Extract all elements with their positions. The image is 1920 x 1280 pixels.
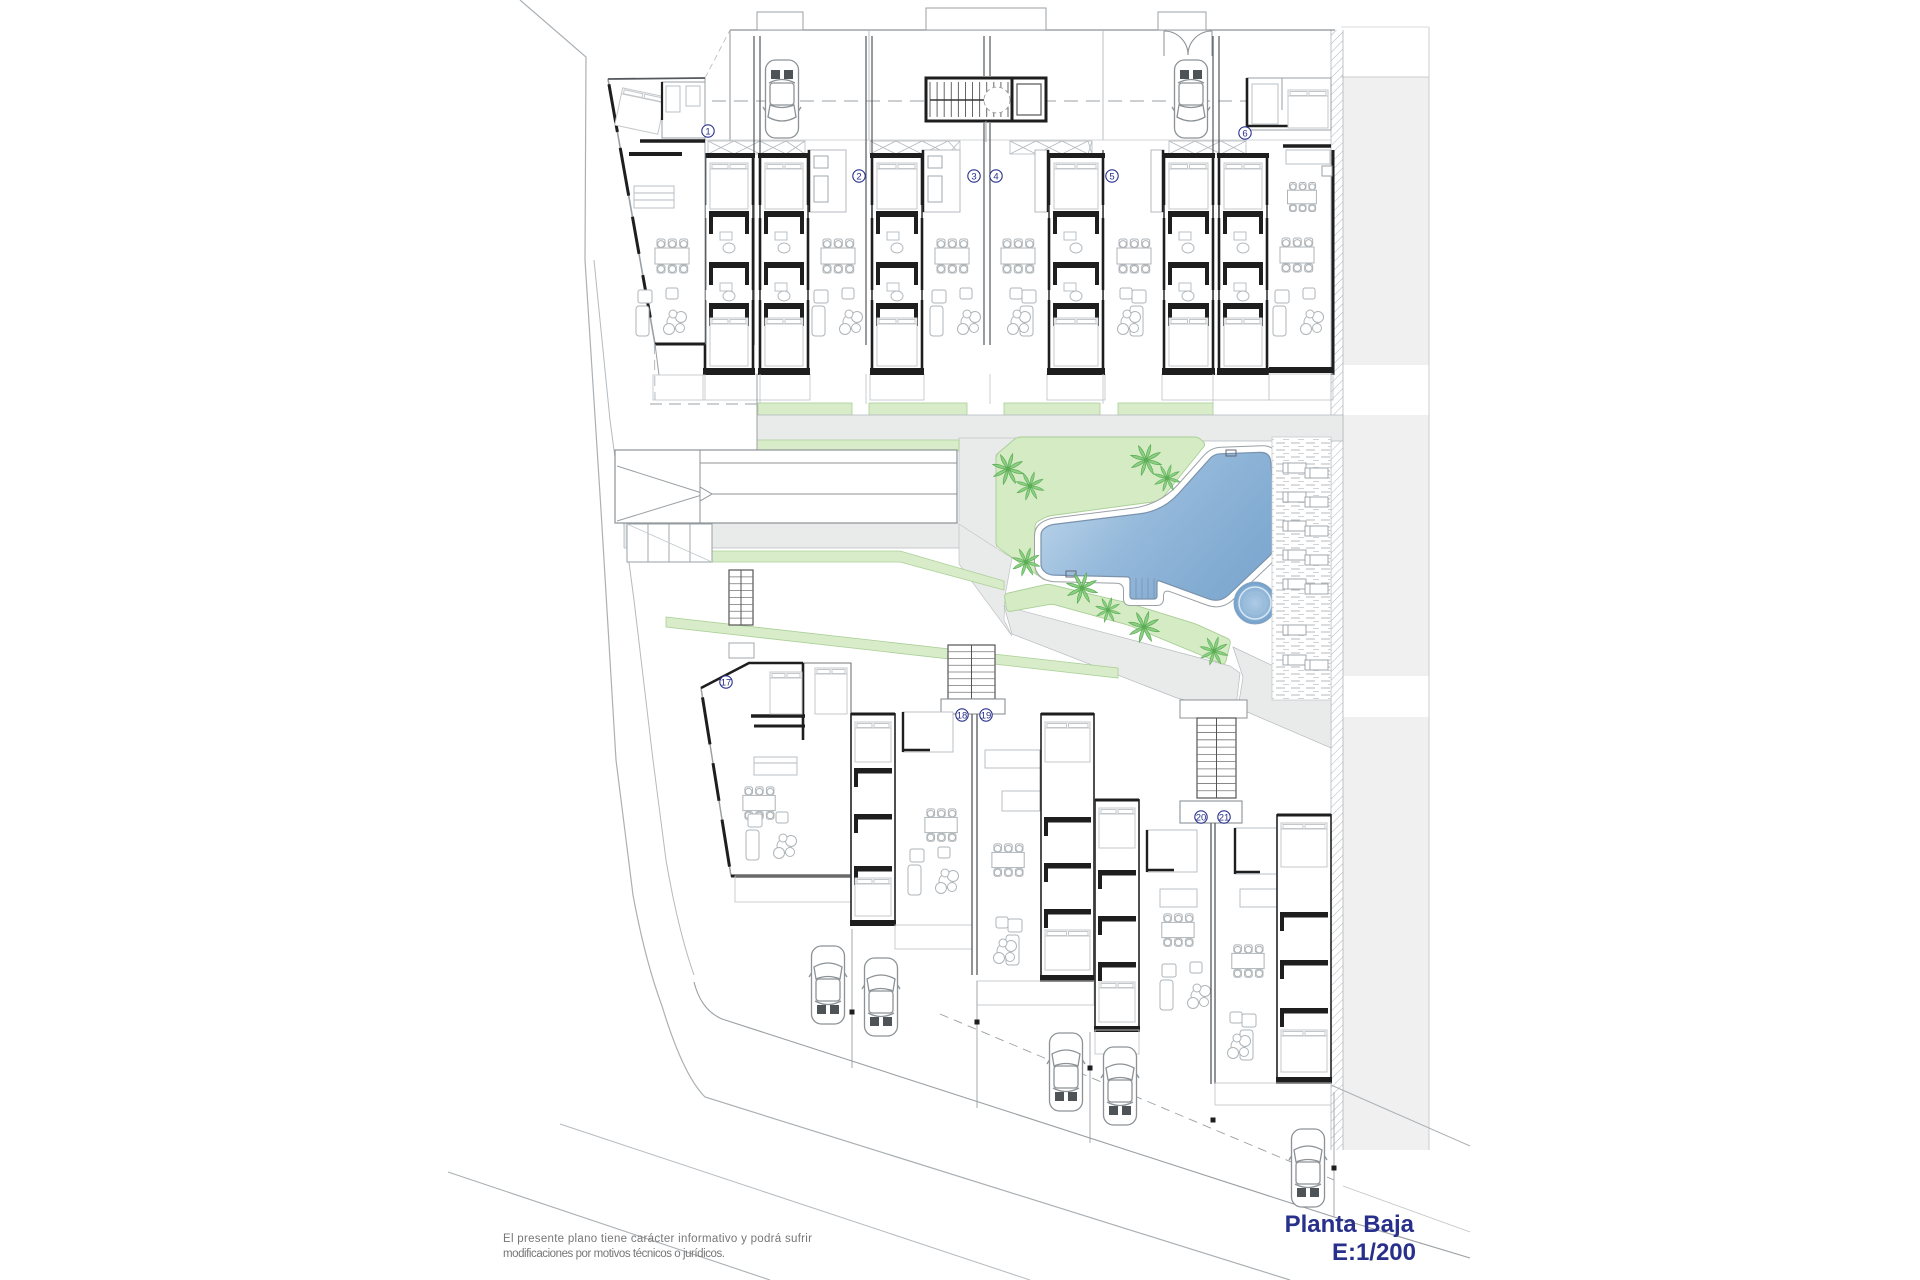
svg-text:El presente plano tiene caráct: El presente plano tiene carácter informa… — [503, 1233, 812, 1245]
svg-text:21: 21 — [1219, 812, 1230, 823]
svg-text:5: 5 — [1109, 171, 1114, 182]
svg-text:4: 4 — [993, 171, 998, 182]
svg-text:1: 1 — [705, 126, 710, 137]
svg-text:E:1/200: E:1/200 — [1332, 1239, 1416, 1266]
svg-text:19: 19 — [981, 710, 992, 721]
svg-text:18: 18 — [957, 710, 968, 721]
svg-text:6: 6 — [1242, 128, 1247, 139]
svg-text:3: 3 — [971, 171, 976, 182]
svg-text:2: 2 — [856, 171, 861, 182]
svg-text:20: 20 — [1196, 812, 1207, 823]
svg-text:Planta Baja: Planta Baja — [1285, 1211, 1415, 1238]
svg-text:17: 17 — [721, 677, 732, 688]
svg-text:modificaciones por motivos téc: modificaciones por motivos técnicos o ju… — [503, 1248, 725, 1260]
